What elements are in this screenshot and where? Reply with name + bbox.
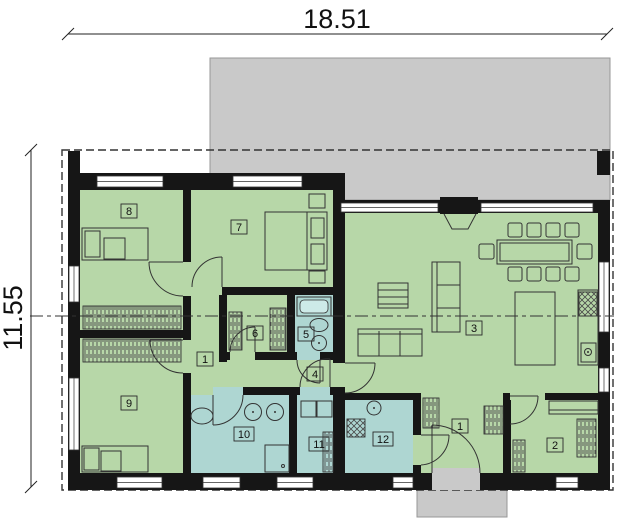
door-opening-room-5 — [297, 352, 320, 360]
dimension-label-height: 11.55 — [0, 285, 28, 351]
corner-pillar-left — [68, 151, 80, 175]
room-label: 9 — [126, 398, 132, 410]
room-label: 2 — [552, 440, 558, 452]
sink-dot — [252, 411, 254, 413]
door-opening-room-10 — [213, 387, 243, 395]
dimension-label-width: 18.51 — [303, 4, 371, 34]
room-label: 12 — [377, 434, 389, 446]
floor-plan: 1 1 2 3 4 5 6 7 8 9 10 11 12 18.51 11.55 — [0, 0, 627, 520]
room-label: 8 — [126, 206, 132, 218]
sink-dot — [274, 411, 276, 413]
fireplace-flue — [440, 197, 478, 214]
washing-machine — [347, 419, 365, 437]
wardrobe-hatch — [270, 308, 286, 350]
room-label: 3 — [471, 323, 477, 335]
floor-plan-svg: 1 1 2 3 4 5 6 7 8 9 10 11 12 18.51 11.55 — [0, 0, 627, 520]
wardrobe-hatch — [423, 398, 439, 428]
door-opening-room-6 — [230, 352, 255, 360]
entrance-threshold — [432, 468, 480, 490]
wardrobe-hatch — [323, 432, 333, 472]
room-label: 1 — [457, 421, 463, 433]
wardrobe-hatch — [83, 339, 181, 362]
room-label: 11 — [313, 439, 324, 451]
wardrobe-hatch — [484, 406, 503, 434]
kitchen-sink-dot — [587, 351, 589, 353]
bathtub-basin — [300, 300, 328, 313]
hallway-floor — [191, 295, 219, 395]
room-label: 5 — [303, 329, 309, 341]
wardrobe-hatch — [513, 440, 525, 472]
door-opening-corridor — [219, 362, 227, 387]
door-opening-room-11 — [300, 387, 330, 395]
hall-passage-floor — [191, 287, 222, 295]
door-opening-room-12 — [413, 435, 421, 465]
sink-dot — [373, 407, 375, 409]
room-label: 6 — [252, 328, 258, 340]
stove — [579, 292, 597, 316]
room-label: 10 — [238, 429, 250, 441]
toilet-dot — [318, 342, 320, 344]
door-opening-room-8 — [183, 262, 191, 296]
corner-pillar-right — [597, 151, 610, 175]
wardrobe-hatch — [83, 306, 181, 329]
door-opening-living — [333, 363, 345, 387]
door-opening-room-9 — [183, 340, 191, 373]
room-label: 4 — [312, 369, 318, 381]
room-label: 1 — [202, 354, 208, 366]
wardrobe-hatch — [577, 419, 596, 457]
room-label: 7 — [236, 222, 242, 234]
